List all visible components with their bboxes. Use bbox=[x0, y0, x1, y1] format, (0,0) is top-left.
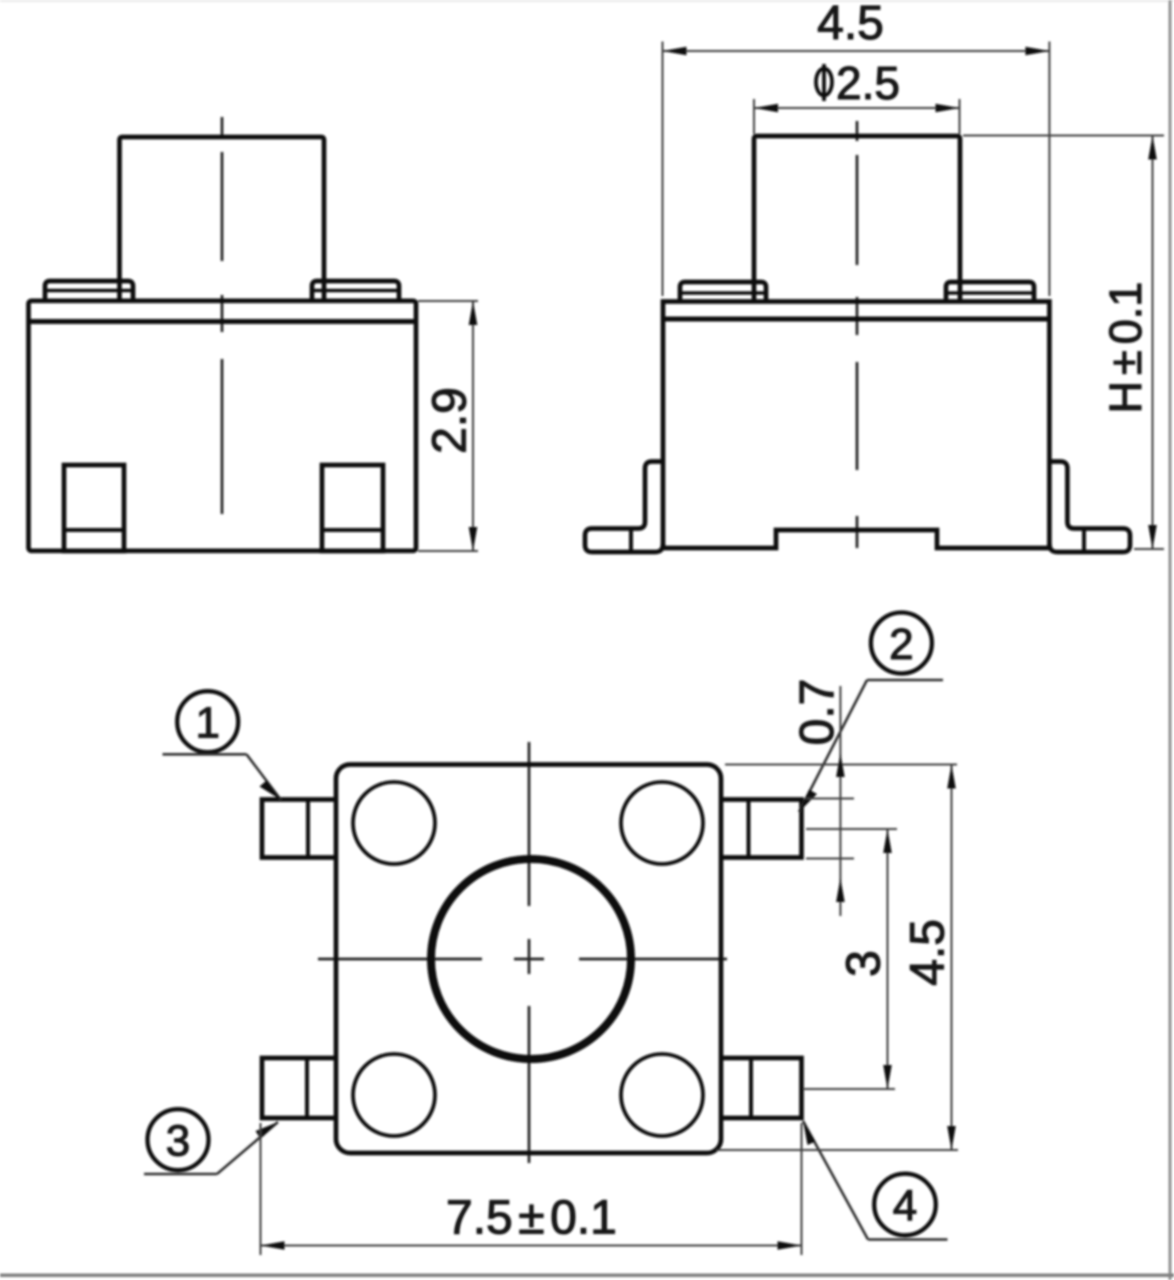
svg-text:4.5: 4.5 bbox=[902, 919, 955, 986]
svg-text:4.5: 4.5 bbox=[817, 0, 884, 50]
svg-text:2.5: 2.5 bbox=[836, 57, 900, 109]
svg-text:1: 1 bbox=[195, 699, 219, 748]
svg-text:3: 3 bbox=[838, 950, 891, 977]
svg-text:0.7: 0.7 bbox=[791, 679, 844, 746]
svg-text:7.5±0.1: 7.5±0.1 bbox=[446, 1192, 617, 1245]
svg-text:2.9: 2.9 bbox=[424, 387, 477, 454]
svg-text:2: 2 bbox=[889, 620, 913, 669]
svg-text:3: 3 bbox=[166, 1117, 190, 1166]
svg-text:4: 4 bbox=[893, 1181, 917, 1230]
svg-text:H±0.1: H±0.1 bbox=[1100, 282, 1151, 414]
